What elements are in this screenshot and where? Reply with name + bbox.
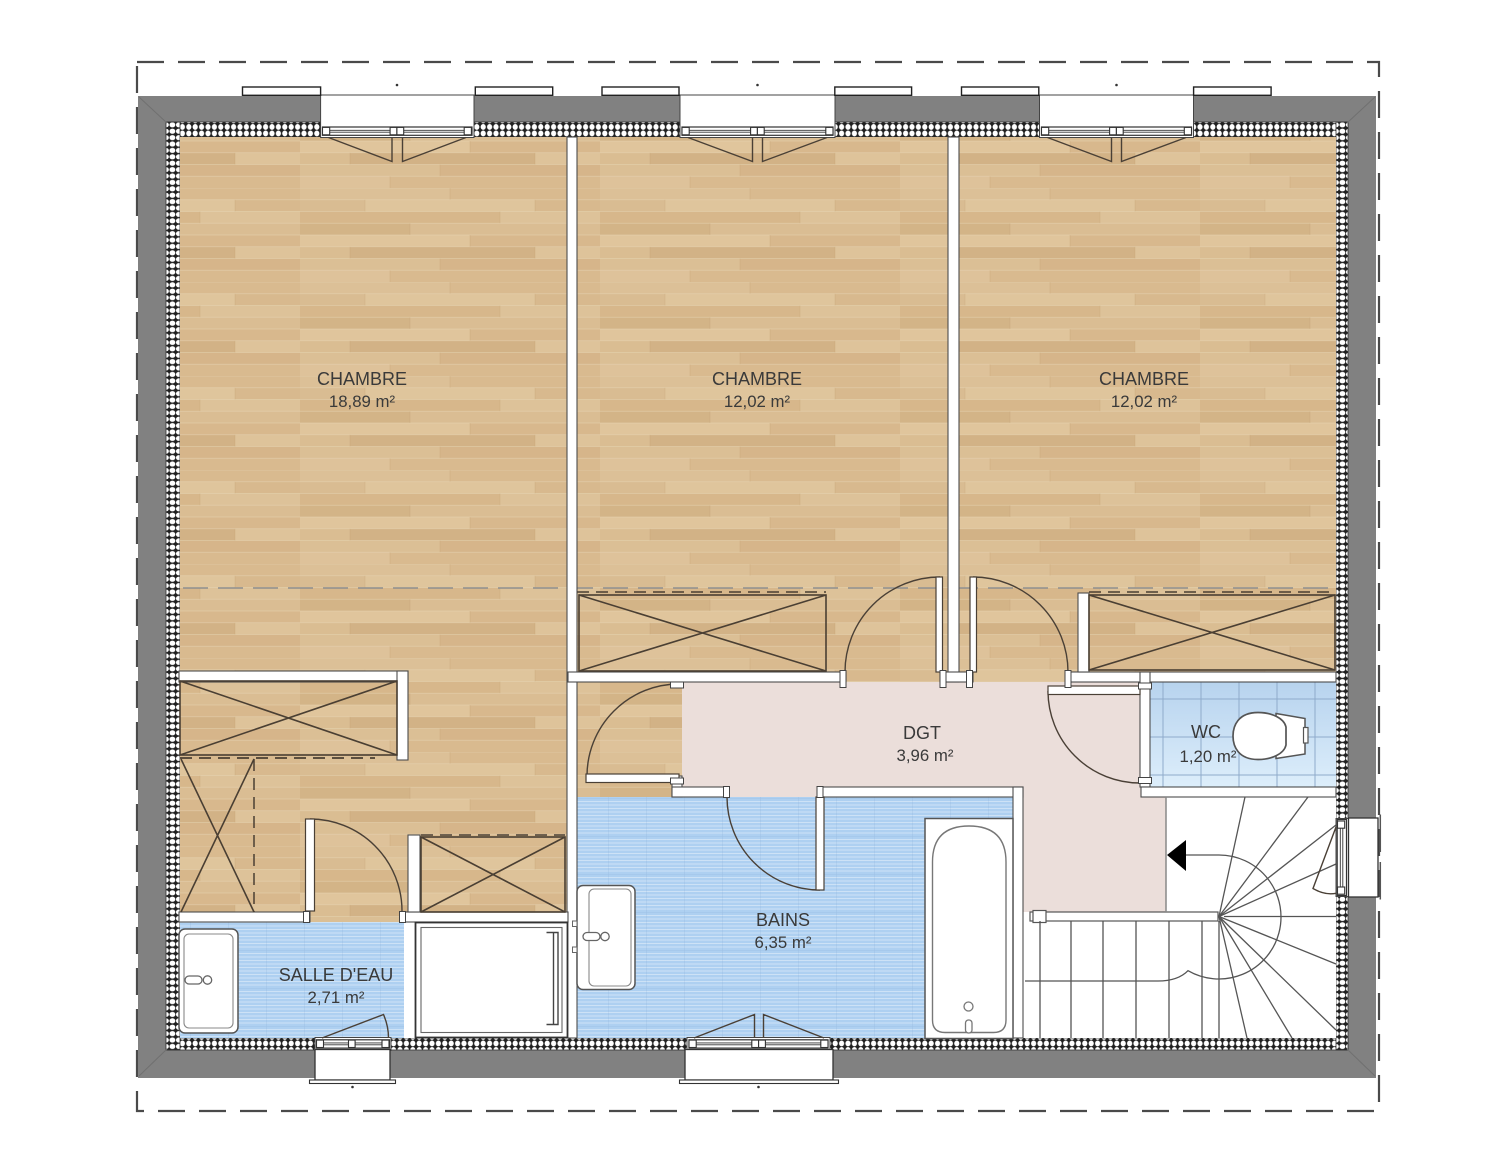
svg-text:6,35 m²: 6,35 m² (755, 933, 812, 952)
svg-text:1,20 m²: 1,20 m² (1180, 747, 1237, 766)
svg-text:CHAMBRE: CHAMBRE (712, 369, 802, 389)
svg-text:CHAMBRE: CHAMBRE (1099, 369, 1189, 389)
svg-text:CHAMBRE: CHAMBRE (317, 369, 407, 389)
svg-text:BAINS: BAINS (756, 910, 810, 930)
svg-text:DGT: DGT (903, 723, 941, 743)
svg-text:SALLE D'EAU: SALLE D'EAU (279, 965, 394, 985)
svg-text:WC: WC (1191, 722, 1221, 742)
svg-text:18,89 m²: 18,89 m² (329, 392, 396, 411)
svg-text:3,96 m²: 3,96 m² (897, 746, 954, 765)
svg-text:12,02 m²: 12,02 m² (1111, 392, 1178, 411)
svg-text:2,71 m²: 2,71 m² (308, 988, 365, 1007)
svg-text:12,02 m²: 12,02 m² (724, 392, 791, 411)
